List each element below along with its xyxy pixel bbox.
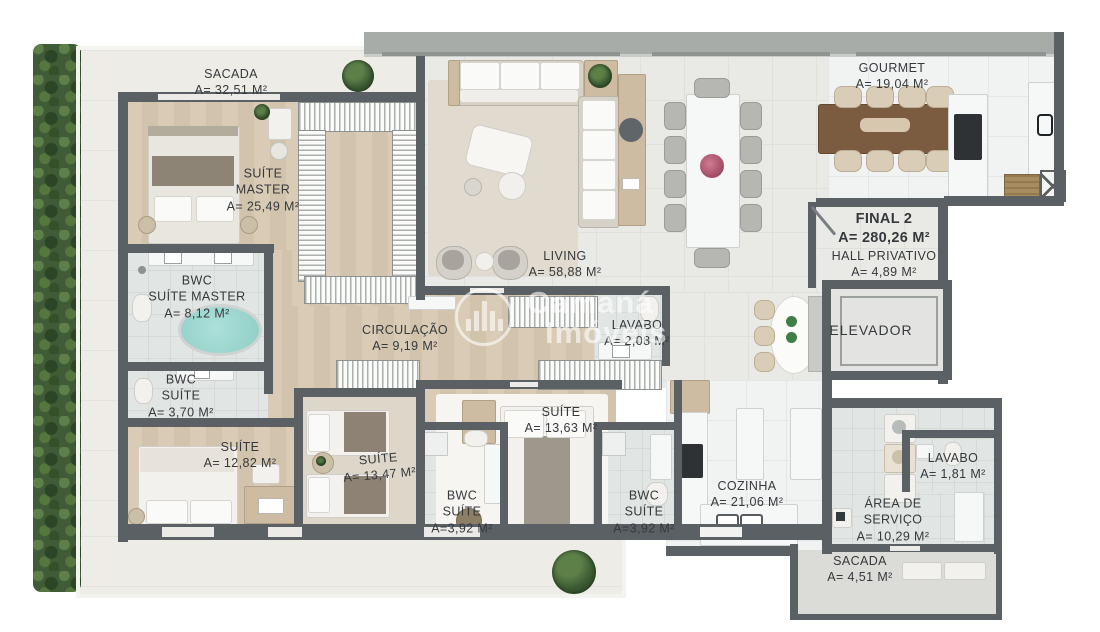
tv-console (618, 74, 646, 226)
floor-sacada-bottom (80, 536, 625, 598)
plant-icon (254, 104, 270, 120)
bed-pillow (190, 500, 232, 524)
window-gap (268, 527, 302, 537)
room-name: SERVIÇO (857, 512, 930, 528)
armchair-seat (442, 250, 464, 270)
shower (424, 432, 448, 456)
flower-centerpiece (700, 154, 724, 178)
room-area: A= 10,29 M² (857, 528, 930, 544)
room-name: BWC (431, 488, 493, 504)
watermark-logo-icon (455, 288, 513, 346)
plant-icon (316, 456, 326, 466)
desk (268, 108, 292, 140)
wall (416, 380, 425, 532)
dining-chair (740, 102, 762, 130)
sofa-cushion (582, 130, 616, 160)
gourmet-chair (898, 150, 926, 172)
swivel-chair (619, 118, 643, 142)
dining-chair (664, 136, 686, 164)
side-table (464, 178, 482, 196)
plant-icon (552, 550, 596, 594)
parapet (78, 594, 626, 598)
sofa-cushion (582, 160, 616, 190)
room-area: A= 1,81 M² (920, 466, 986, 482)
room-label-bwc-392-left: BWC SUÍTE A=3,92 M² (431, 488, 493, 537)
room-area: A= 32,51 M² (195, 82, 268, 98)
bed-blanket (152, 156, 234, 186)
laundry-tank (954, 492, 984, 542)
parapet (622, 536, 626, 598)
appliance-door (836, 512, 845, 521)
room-label-circulacao: CIRCULAÇÃO A= 9,19 M² (362, 322, 448, 355)
sofa-cushion (460, 62, 500, 90)
sofa-cushion (540, 62, 580, 90)
room-label-bwc-suite: BWC SUÍTE A= 3,70 M² (148, 372, 214, 421)
watermark-text-line1: Camaná (527, 288, 654, 317)
room-label-cozinha: COZINHA A= 21,06 M² (711, 478, 784, 511)
room-area: A=3,92 M² (613, 520, 675, 536)
room-area: A= 25,49 M² (227, 198, 300, 214)
bedside-lamp (128, 508, 145, 525)
wall (902, 430, 994, 438)
bed-blanket (524, 436, 570, 526)
wall (674, 380, 682, 532)
room-label-sacada-top: SACADA A= 32,51 M² (195, 66, 268, 99)
cooktop (954, 114, 982, 160)
window-frame (382, 52, 620, 56)
bench (944, 562, 986, 580)
room-label-suite-1363: SUÍTE A= 13,63 M² (525, 404, 598, 437)
wall (944, 196, 1064, 206)
room-label-elevador: ELEVADOR (829, 321, 912, 339)
wall (500, 422, 508, 532)
dining-chair (664, 204, 686, 232)
window-gap (700, 527, 742, 537)
wardrobe (298, 130, 326, 282)
sofa-armrest (448, 60, 460, 106)
wall (594, 422, 602, 532)
window-frame (652, 52, 830, 56)
room-name: BWC (148, 372, 214, 388)
logo-bar (498, 319, 503, 331)
wall (118, 92, 128, 542)
sofa-seat (460, 90, 578, 102)
room-name: SUÍTE (227, 166, 300, 182)
wall (1054, 32, 1064, 206)
wall (118, 244, 274, 253)
parapet (76, 46, 80, 598)
kitchen-island (790, 408, 822, 480)
room-name: GOURMET (856, 60, 929, 76)
dining-chair (740, 136, 762, 164)
room-area: A= 4,51 M² (827, 569, 893, 585)
room-name: LIVING (529, 248, 602, 264)
wall (118, 362, 270, 371)
room-name: SUÍTE (148, 388, 214, 404)
room-label-area-servico: ÁREA DE SERVIÇO A= 10,29 M² (857, 496, 930, 545)
room-area: A= 58,88 M² (529, 264, 602, 280)
room-label-suite-1347: SUÍTE A= 13,47 M² (341, 448, 416, 487)
watermark-text-line2: Imóveis (545, 318, 667, 347)
room-name: COZINHA (711, 478, 784, 494)
room-area: A=3,92 M² (431, 520, 493, 536)
unit-name: FINAL 2 (832, 210, 937, 229)
shower (602, 432, 626, 456)
desk-drawer (258, 498, 284, 514)
wall (594, 422, 682, 430)
armchair-seat (498, 250, 520, 270)
wardrobe (336, 360, 420, 390)
room-name: SUÍTE (431, 504, 493, 520)
wall (816, 198, 948, 207)
room-area: A= 8,12 M² (148, 305, 245, 321)
dining-chair (694, 248, 730, 268)
dining-chair (664, 102, 686, 130)
room-name: SUÍTE (613, 504, 675, 520)
room-name: LAVABO (920, 450, 986, 466)
wall (994, 406, 1002, 554)
room-name: ELEVADOR (829, 321, 912, 339)
cooktop (681, 444, 703, 478)
gourmet-chair (866, 150, 894, 172)
room-name: SACADA (195, 66, 268, 82)
bed-pillow (308, 414, 330, 452)
gourmet-chair (834, 150, 862, 172)
plate (786, 332, 797, 343)
room-label-lavabo-181: LAVABO A= 1,81 M² (920, 450, 986, 483)
faucet-icon (1037, 114, 1053, 136)
room-label-suite-1282: SUÍTE A= 12,82 M² (204, 439, 277, 472)
dining-chair (740, 170, 762, 198)
room-label-suite-master: SUÍTE MASTER A= 25,49 M² (227, 166, 300, 215)
room-area: A= 9,19 M² (362, 338, 448, 354)
room-name: HALL PRIVATIVO (832, 248, 937, 264)
logo-bar (474, 311, 479, 331)
wall (996, 550, 1002, 620)
unit-area: A= 280,26 M² (832, 229, 937, 248)
side-table (475, 252, 494, 271)
unit-label-final2: FINAL 2 A= 280,26 M² HALL PRIVATIVO A= 4… (832, 210, 937, 280)
bed-pillow (154, 196, 192, 222)
table-runner (860, 118, 910, 132)
window-frame (856, 52, 1046, 56)
room-name: CIRCULAÇÃO (362, 322, 448, 338)
bench (902, 562, 942, 580)
wall (666, 546, 796, 556)
toilet (464, 430, 488, 447)
desk-chair (270, 142, 288, 160)
room-name: SUÍTE (204, 439, 277, 455)
room-area: A= 21,06 M² (711, 494, 784, 510)
wall (264, 244, 273, 394)
room-area: A= 12,82 M² (204, 455, 277, 471)
room-name: BWC (613, 488, 675, 504)
wall (294, 388, 303, 530)
pouf (498, 172, 526, 200)
dining-chair (664, 170, 686, 198)
room-area: A= 19,04 M² (856, 76, 929, 92)
sofa-cushion (582, 100, 616, 130)
plant-icon (588, 64, 612, 88)
wall (416, 422, 508, 430)
logo-bar (482, 301, 487, 331)
bed-pillow (308, 477, 330, 513)
floor-plan: SACADA A= 32,51 M² SUÍTE MASTER A= 25,49… (0, 0, 1100, 632)
wall (416, 56, 425, 300)
bed-blanket (344, 412, 386, 452)
room-label-sacada-451: SACADA A= 4,51 M² (827, 553, 893, 586)
shower-head (138, 266, 146, 274)
wall (808, 202, 816, 288)
room-name: SUÍTE MASTER (148, 289, 245, 305)
sink (214, 252, 232, 264)
sink (164, 252, 182, 264)
room-label-living: LIVING A= 58,88 M² (529, 248, 602, 281)
chair (754, 326, 775, 346)
room-area: A= 3,70 M² (148, 404, 214, 420)
dining-chair (740, 204, 762, 232)
kitchen-island (736, 408, 764, 480)
wall (902, 430, 910, 492)
room-name: SACADA (827, 553, 893, 569)
window-gap (162, 527, 214, 537)
room-name: MASTER (227, 182, 300, 198)
dining-chair (694, 78, 730, 98)
decor-object (622, 178, 640, 190)
room-area: A= 4,89 M² (832, 264, 937, 280)
room-label-gourmet: GOURMET A= 19,04 M² (856, 60, 929, 93)
bed-headboard (148, 126, 238, 136)
door-gap (890, 546, 920, 551)
door-gap (510, 382, 538, 387)
chair (754, 300, 775, 320)
room-label-bwc-suite-master: BWC SUÍTE MASTER A= 8,12 M² (148, 273, 245, 322)
sofa-cushion (500, 62, 540, 90)
room-name: BWC (148, 273, 245, 289)
plant-icon (342, 60, 374, 92)
bathroom-vanity (650, 434, 672, 480)
wall (790, 614, 1002, 620)
bed-pillow (146, 500, 188, 524)
hedge-plants (33, 44, 81, 592)
chair (754, 352, 775, 372)
room-name: ÁREA DE (857, 496, 930, 512)
wall (822, 398, 1002, 408)
room-name: SUÍTE (525, 404, 598, 420)
sofa-cushion (582, 190, 616, 220)
wardrobe (298, 102, 420, 132)
wall (294, 388, 424, 397)
wardrobe (304, 276, 418, 304)
room-area: A= 13,63 M² (525, 420, 598, 436)
room-label-bwc-392-right: BWC SUÍTE A=3,92 M² (613, 488, 675, 537)
bedside-lamp (240, 216, 258, 234)
plate (786, 316, 797, 327)
logo-bar (466, 319, 471, 331)
logo-bar (490, 311, 495, 331)
